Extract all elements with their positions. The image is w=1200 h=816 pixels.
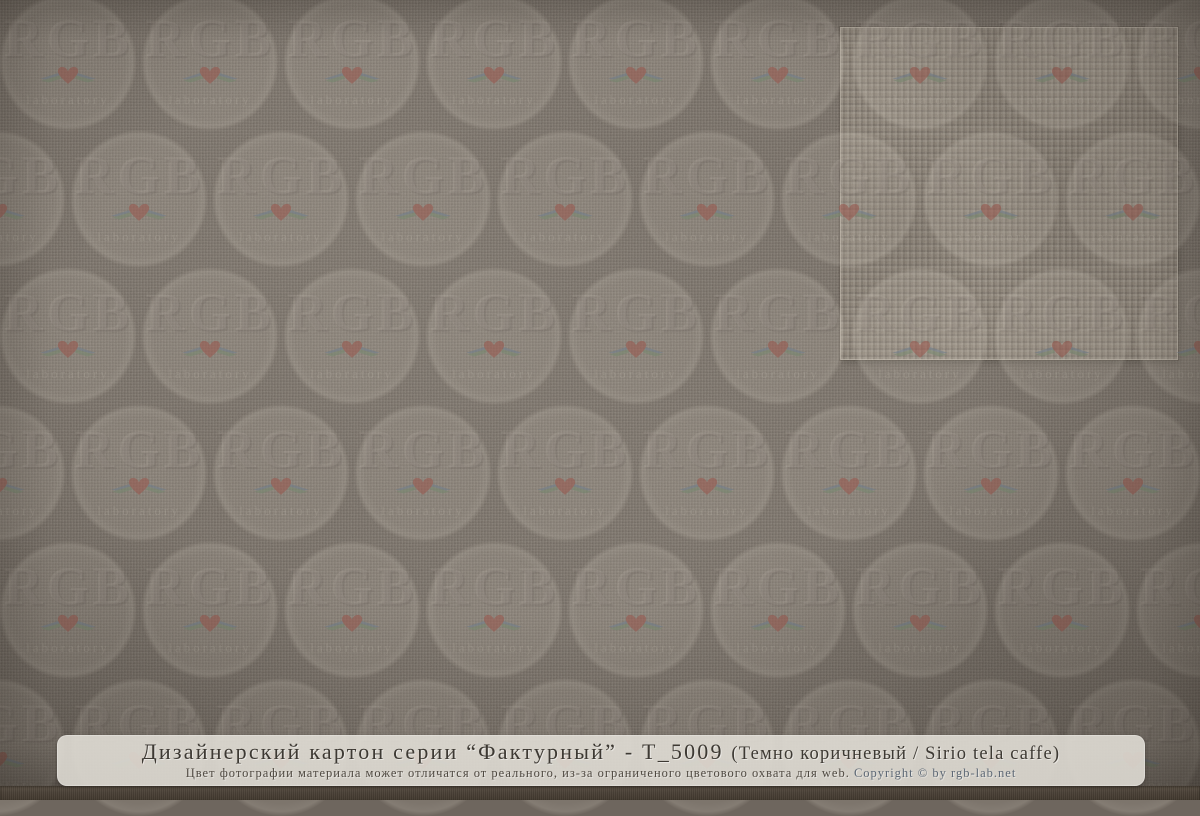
texture-detail-inset <box>840 27 1178 360</box>
caption-copyright: Copyright © by rgb-lab.net <box>854 766 1016 780</box>
caption-bar: Дизайнерский картон серии “Фактурный” - … <box>57 735 1145 786</box>
caption-title: Дизайнерский картон серии “Фактурный” - … <box>57 739 1145 765</box>
caption-disclaimer: Цвет фотографии материала может отличатс… <box>186 766 854 780</box>
photo-bottom-edge <box>0 786 1200 800</box>
caption-subtitle: Цвет фотографии материала может отличатс… <box>57 766 1145 781</box>
caption-title-detail: (Темно коричневый / Sirio tela caffe) <box>731 744 1060 764</box>
caption-title-main: Дизайнерский картон серии “Фактурный” - … <box>142 739 732 764</box>
